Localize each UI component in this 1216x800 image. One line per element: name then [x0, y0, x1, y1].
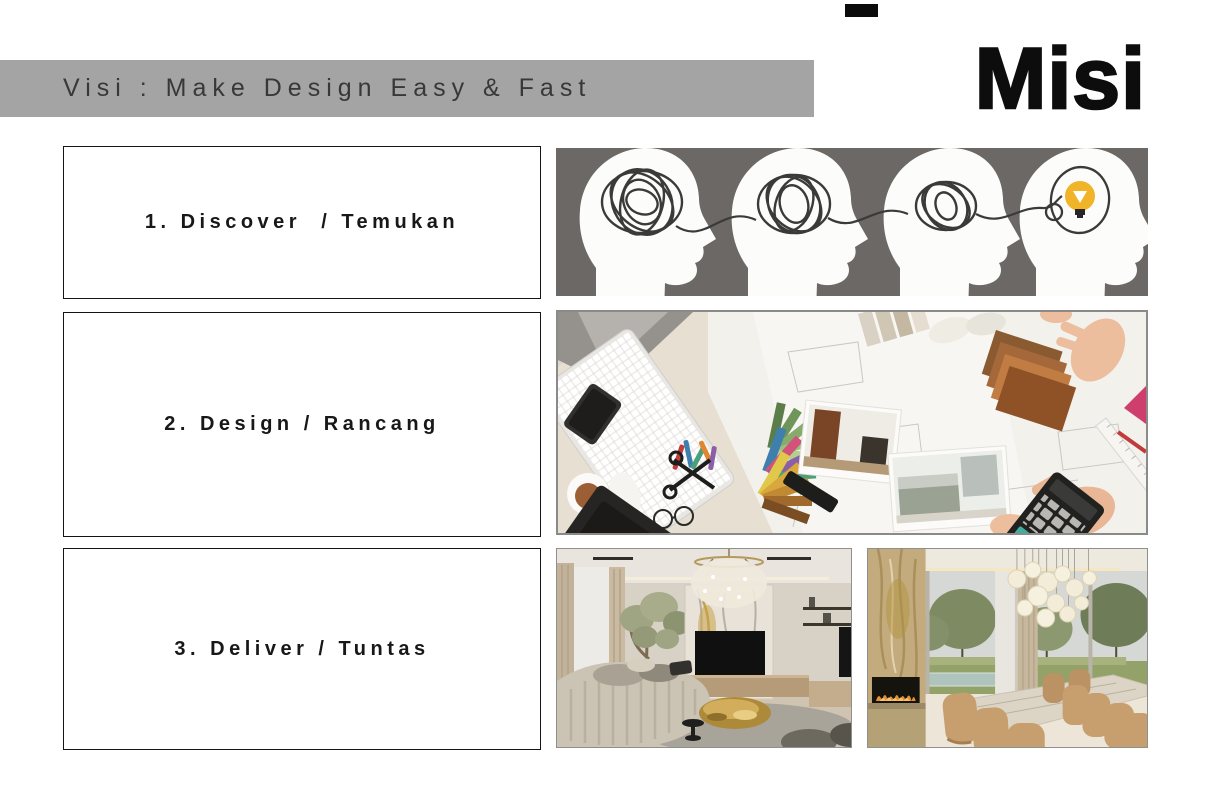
living-room-photo — [557, 549, 851, 747]
step-label-discover: 1. Discover / Temukan — [145, 211, 459, 234]
mission-title: Misi — [975, 36, 1146, 122]
living-room-panel — [556, 548, 852, 748]
head-silhouette-4 — [1020, 148, 1148, 296]
second-tv — [839, 627, 851, 677]
step-label-design: 2. Design / Rancang — [164, 413, 440, 436]
workspace-photo — [558, 312, 1146, 533]
tv — [695, 631, 765, 675]
fireplace-wall — [868, 549, 926, 747]
step-box-deliver: 3. Deliver / Tuntas — [63, 548, 541, 750]
step-box-design: 2. Design / Rancang — [63, 312, 541, 537]
workspace-panel — [556, 310, 1148, 535]
pillar — [995, 571, 1017, 694]
dining-room-panel — [867, 548, 1148, 748]
step-label-deliver: 3. Deliver / Tuntas — [174, 638, 429, 661]
presentation-slide: Visi : Make Design Easy & Fast Misi 1. D… — [0, 0, 1216, 800]
vision-title: Visi : Make Design Easy & Fast — [63, 74, 591, 103]
top-black-marker — [845, 4, 878, 17]
ideation-illustration — [556, 148, 1148, 296]
dining-room-photo — [868, 549, 1147, 747]
shelves — [803, 607, 851, 610]
gold-coffee-table — [699, 697, 771, 729]
vision-banner: Visi : Make Design Easy & Fast — [0, 60, 814, 117]
photo-print-bedroom — [888, 446, 1011, 532]
step-box-discover: 1. Discover / Temukan — [63, 146, 541, 299]
curved-sofa — [557, 658, 710, 747]
photo-print-hallway — [798, 400, 901, 484]
ideation-panel — [556, 148, 1148, 296]
